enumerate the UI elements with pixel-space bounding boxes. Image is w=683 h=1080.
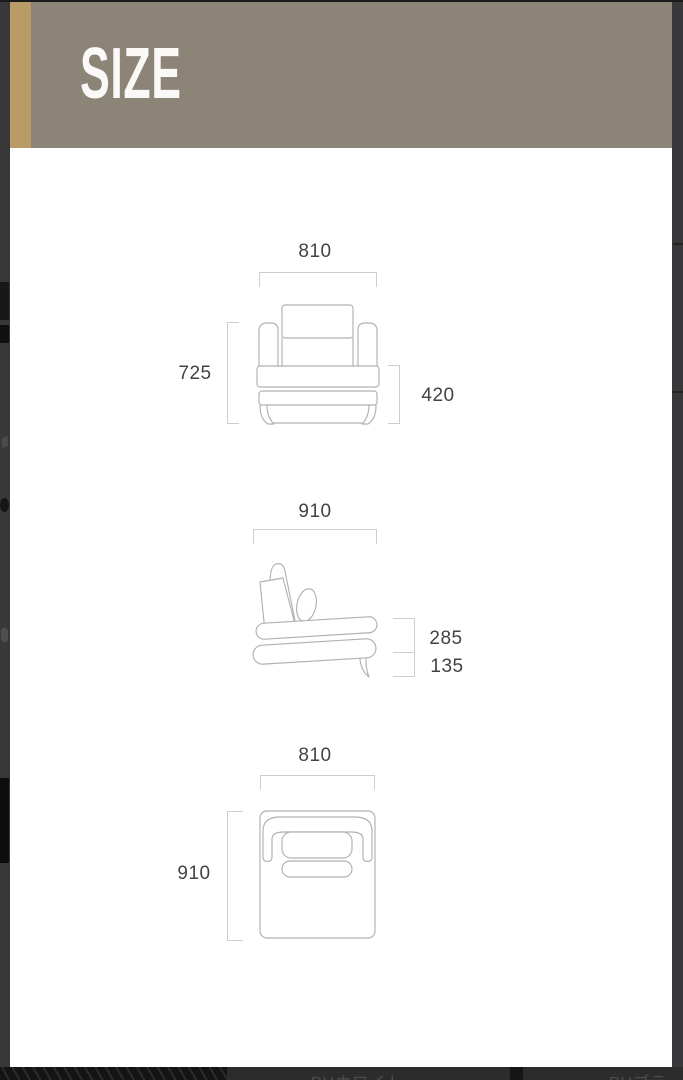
dimmed-page-bottom-divider xyxy=(510,1067,523,1080)
background-artifact xyxy=(0,498,9,512)
armchair-top-drawing xyxy=(258,809,377,940)
side-depth-label: 910 xyxy=(290,502,340,522)
side-seat-section-bracket xyxy=(393,618,415,652)
side-seat-section-label: 285 xyxy=(421,629,471,649)
front-seat-height-bracket xyxy=(388,365,400,424)
background-artifact xyxy=(1,628,8,642)
background-artifact xyxy=(673,391,683,393)
dimmed-page-bottom-left xyxy=(0,1067,227,1080)
front-height-bracket xyxy=(227,322,239,424)
background-color-option-label: PUブラ xyxy=(609,1069,667,1080)
size-panel: SIZE 810 725 420 910 285 xyxy=(10,2,672,1067)
background-artifact xyxy=(0,778,9,863)
front-width-label: 810 xyxy=(290,242,340,262)
size-title: SIZE xyxy=(80,38,182,110)
top-depth-label: 910 xyxy=(169,864,219,884)
background-artifact xyxy=(673,243,683,245)
top-depth-bracket xyxy=(227,811,243,941)
front-seat-height-label: 420 xyxy=(413,386,463,406)
background-color-option-label: PUホワイト xyxy=(311,1069,403,1080)
accent-stripe xyxy=(10,2,31,148)
armchair-front-drawing xyxy=(255,298,385,428)
armchair-side-drawing xyxy=(250,556,385,681)
front-width-bracket xyxy=(259,272,377,287)
background-artifact xyxy=(0,325,9,343)
size-panel-header: SIZE xyxy=(10,2,672,148)
side-leg-clearance-label: 135 xyxy=(422,657,472,677)
top-width-label: 810 xyxy=(290,746,340,766)
screenshot-root: PUホワイト PUブラ SIZE 810 725 420 xyxy=(0,0,683,1080)
front-height-label: 725 xyxy=(170,364,220,384)
side-depth-bracket xyxy=(253,529,377,544)
background-artifact xyxy=(2,436,8,448)
top-width-bracket xyxy=(260,775,375,790)
side-leg-clearance-bracket xyxy=(393,652,415,677)
background-artifact xyxy=(0,282,9,320)
